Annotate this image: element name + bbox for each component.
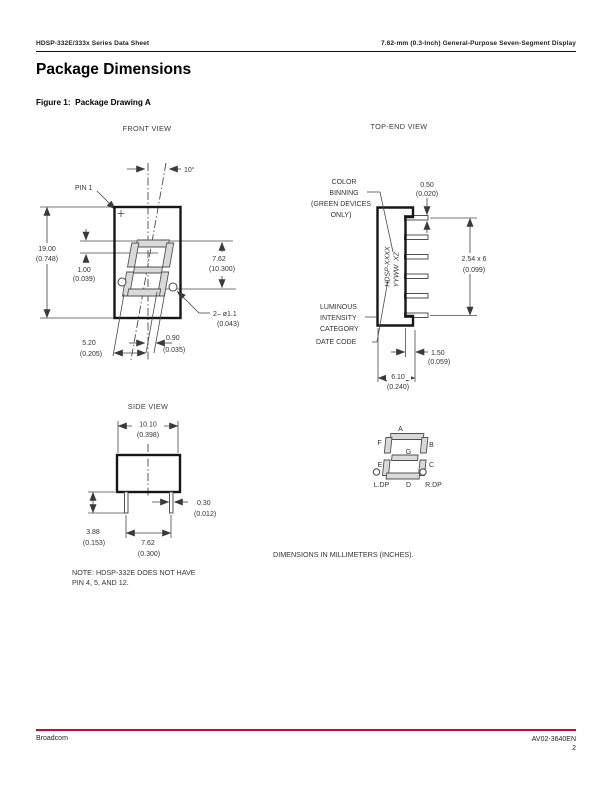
dim-520-in: (0.205) — [80, 351, 102, 358]
left-decimal-point — [373, 469, 379, 475]
luminous-line3: CATEGORY — [320, 326, 359, 333]
right-decimal-point — [169, 283, 177, 291]
dim-pin-w-in: (0.012) — [194, 511, 216, 518]
dim-pitch-in: (0.099) — [463, 267, 485, 274]
dim-width-in: (0.398) — [137, 432, 159, 439]
right-decimal-point — [420, 469, 426, 475]
label-seg-e: E — [378, 462, 383, 469]
dim-520-mm: 5.20 — [82, 340, 96, 347]
dim-050-in: (0.020) — [416, 191, 438, 198]
dim-150-mm: 1.50 — [431, 350, 445, 357]
pin1-label: PIN 1 — [75, 185, 93, 192]
dim-050-mm: 0.50 — [420, 182, 434, 189]
note-line2: PIN 4, 5, AND 12. — [72, 578, 196, 588]
dim-pin-len-in: (0.153) — [83, 540, 105, 547]
color-binning-line4: ONLY) — [331, 212, 352, 219]
label-seg-g: G — [406, 449, 411, 456]
dim-090-in: (0.035) — [163, 347, 185, 354]
pin — [125, 492, 129, 513]
pin — [405, 235, 429, 240]
dim-pitch-mm: 7.62 — [141, 540, 155, 547]
front-view-label: FRONT VIEW — [123, 124, 172, 133]
dim-one-mm: 1.00 — [77, 267, 91, 274]
footer-page-number: 2 — [532, 744, 576, 753]
label-seg-c: C — [429, 462, 434, 469]
dim-150-in: (0.059) — [428, 359, 450, 366]
side-view-label: SIDE VIEW — [128, 402, 168, 411]
dim-610-in: (0.240) — [387, 384, 409, 391]
top-end-view-label: TOP-END VIEW — [371, 122, 428, 131]
pin — [405, 274, 429, 279]
footer-doc-info: AV02-3640EN 2 — [532, 735, 576, 753]
segment-d — [127, 289, 160, 296]
label-ldp: L.DP — [374, 482, 390, 489]
angle-label: 10° — [184, 166, 195, 174]
top-end-view: TOP-END VIEW HDSP-XXXX YYWW XZ COLOR BIN… — [311, 122, 496, 391]
dim-height-in: (0.748) — [36, 256, 58, 263]
segment-f — [384, 438, 392, 454]
label-seg-b: B — [429, 442, 434, 449]
package-outline — [117, 455, 180, 492]
seven-segment-digit — [122, 240, 174, 296]
side-view: SIDE VIEW 10.10 (0.398) 3.88 (0.153) 0.3… — [83, 402, 216, 558]
dim-pitch-in: (0.300) — [138, 551, 160, 558]
label-rdp: R.DP — [425, 482, 442, 489]
package-drawing: FRONT VIEW 10° PIN 1 — [0, 0, 612, 612]
pin1-leader — [97, 191, 115, 209]
datasheet-page: HDSP-332E/333x Series Data Sheet 7.62-mm… — [0, 0, 612, 792]
dim-one-in: (0.039) — [73, 276, 95, 283]
color-binning-line1: COLOR — [332, 179, 357, 186]
front-view: FRONT VIEW 10° PIN 1 — [28, 124, 239, 360]
color-binning-line2: BINNING — [329, 190, 358, 197]
pin — [405, 255, 429, 260]
segment-legend: A F B G E C L.DP D R.DP — [373, 426, 442, 489]
dim-char-in: (10.300) — [209, 266, 235, 273]
dim-width-mm: 10.10 — [139, 422, 157, 429]
segment-f — [128, 243, 139, 267]
pin — [405, 294, 429, 299]
pin — [170, 492, 174, 513]
dimensions-note: DIMENSIONS IN MILLIMETERS (INCHES). — [273, 550, 414, 559]
dim-holes-in: (0.043) — [217, 321, 239, 328]
note: NOTE: HDSP-332E DOES NOT HAVE PIN 4, 5, … — [72, 568, 196, 588]
color-binning-line3: (GREEN DEVICES — [311, 201, 371, 208]
dim-holes-mm: 2– ø1.1 — [213, 311, 237, 318]
footer-rule — [36, 729, 576, 731]
marking-date-code: YYWW XZ — [394, 251, 401, 288]
dim-height-mm: 19.00 — [38, 246, 56, 253]
centerline-tilted — [131, 163, 166, 360]
label-seg-f: F — [377, 440, 381, 447]
footer-brand: Broadcom — [36, 735, 68, 742]
segment-a — [390, 434, 424, 440]
footer-doc-number: AV02-3640EN — [532, 735, 576, 744]
dim-090-mm: 0.90 — [166, 335, 180, 342]
segment-b — [420, 438, 428, 454]
dim-pin-w-mm: 0.30 — [197, 500, 211, 507]
dim-pin-len-mm: 3.88 — [86, 529, 100, 536]
luminous-line2: INTENSITY — [320, 315, 357, 322]
dim-610-mm: 6.10 — [391, 374, 405, 381]
dim-char-mm: 7.62 — [212, 256, 226, 263]
label-seg-d: D — [406, 482, 411, 489]
segment-g — [133, 267, 162, 273]
segment-a — [136, 240, 169, 247]
date-code-label: DATE CODE — [316, 339, 357, 346]
dim-pitch-mm: 2.54 x 6 — [462, 256, 487, 263]
label-seg-a: A — [398, 426, 403, 433]
segment-d — [386, 473, 420, 479]
left-decimal-point — [118, 278, 126, 286]
luminous-line1: LUMINOUS — [320, 304, 357, 311]
note-line1: NOTE: HDSP-332E DOES NOT HAVE — [72, 568, 196, 578]
leader-line — [380, 192, 393, 252]
marking-part-number: HDSP-XXXX — [385, 245, 392, 287]
